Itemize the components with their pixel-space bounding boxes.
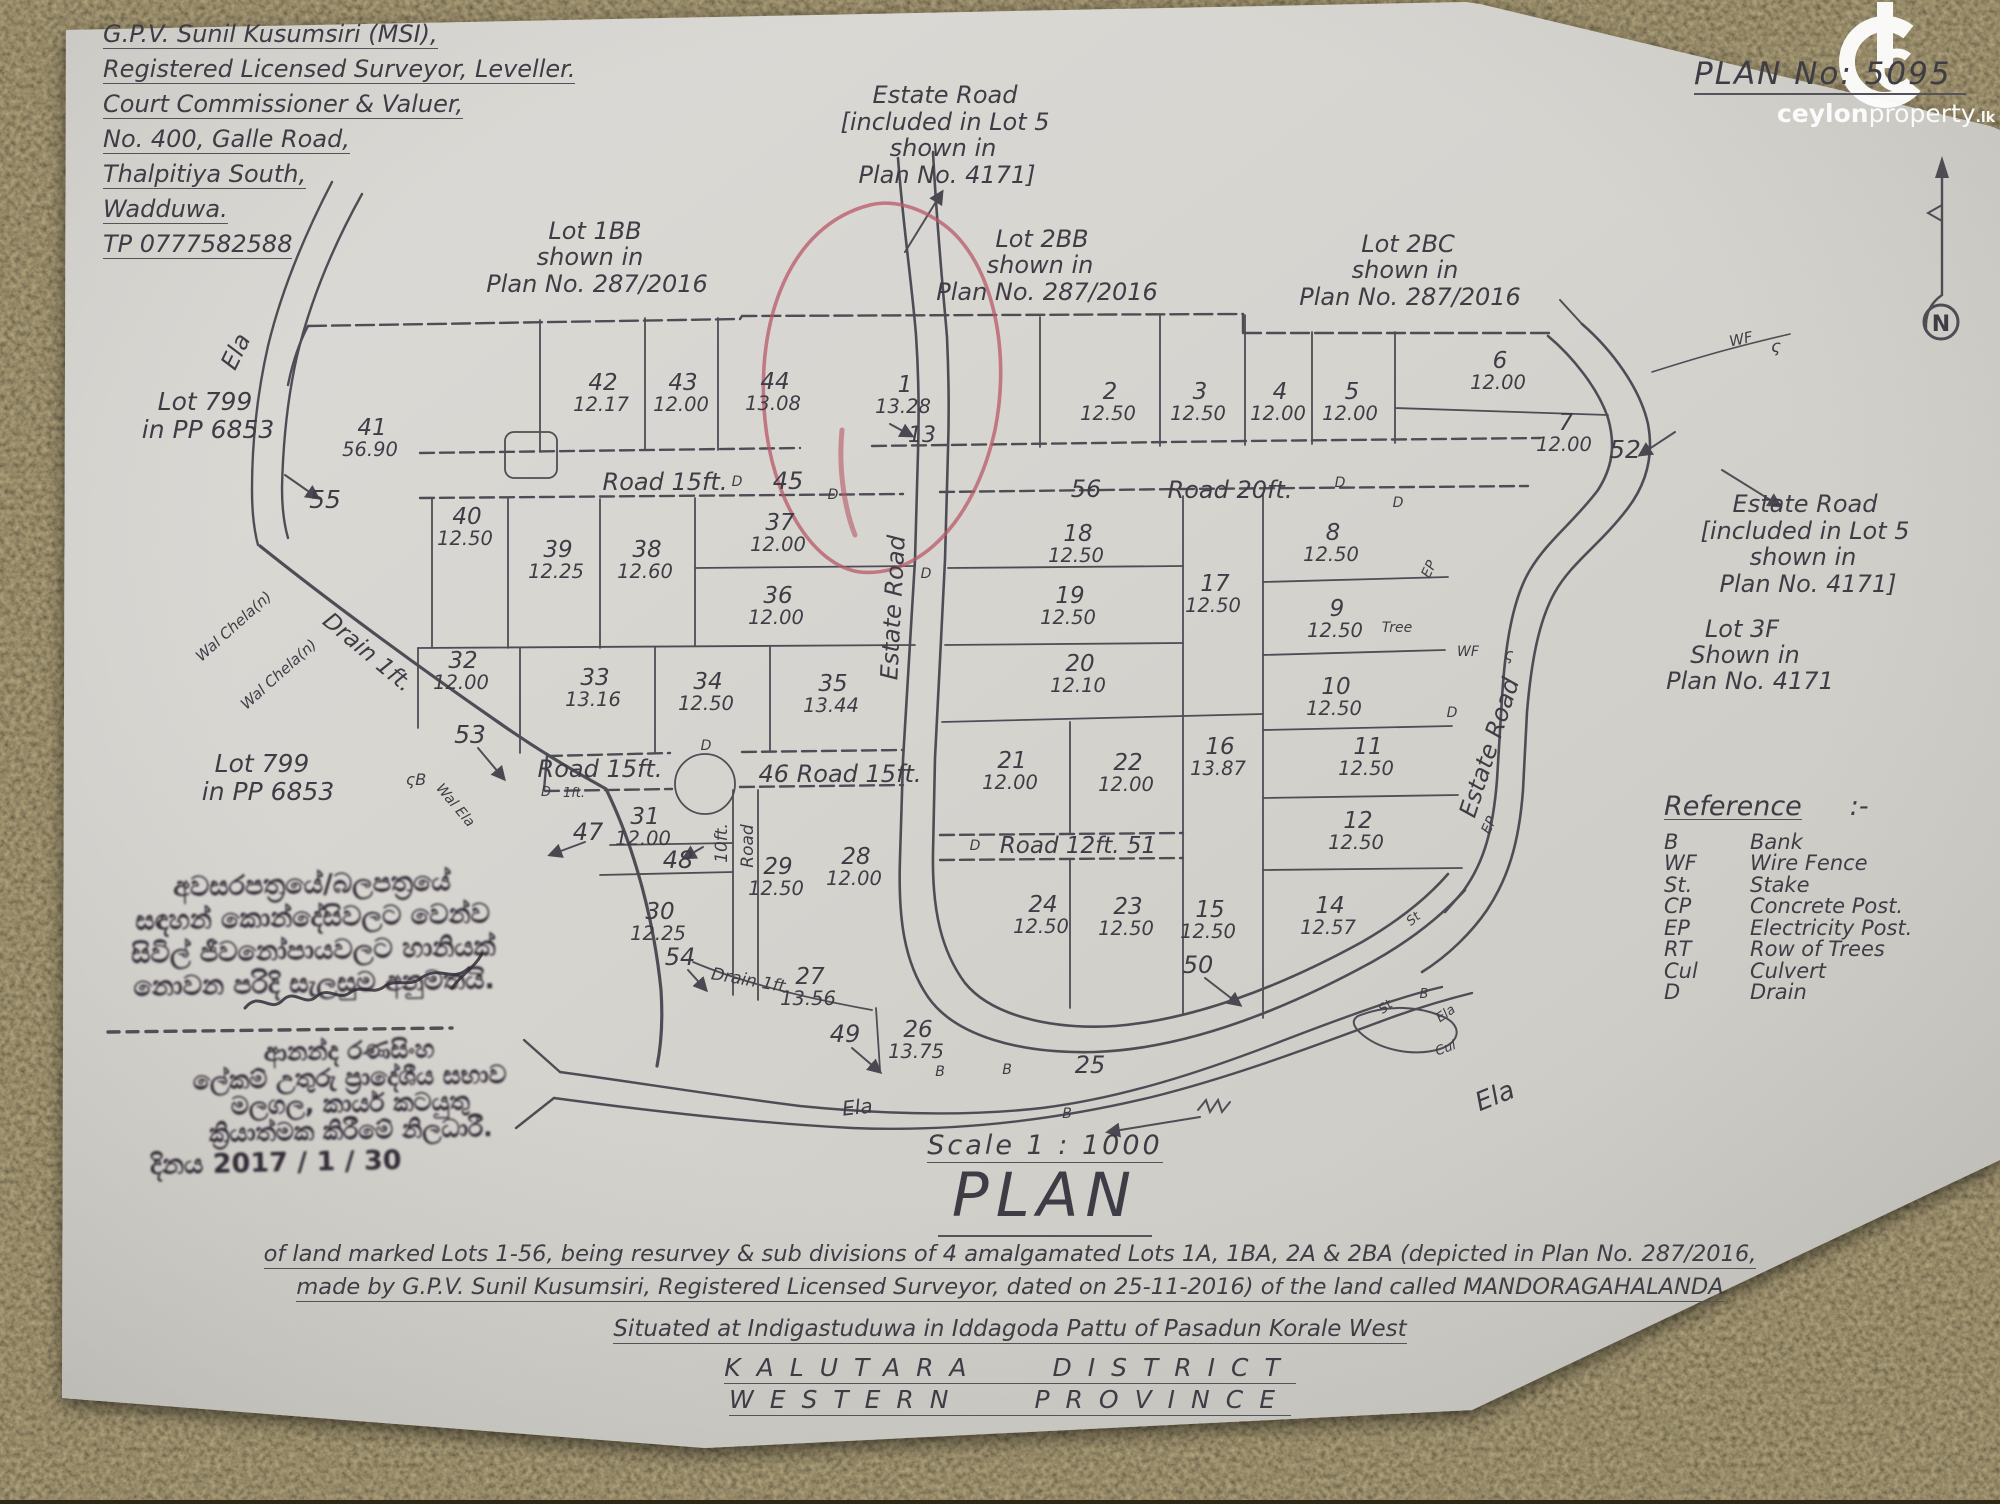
map-label: D <box>701 738 712 754</box>
map-label: Road 12ft. 51 <box>1000 833 1156 859</box>
map-label: shown in <box>1352 256 1459 284</box>
map-label: Road <box>738 824 758 868</box>
map-label: B <box>935 1064 945 1080</box>
legend-row-drain: DDrain <box>1664 982 1912 1004</box>
legend-row-wire-fence: WFWire Fence <box>1664 853 1912 875</box>
surveyor-address-3: Wadduwa. <box>103 197 575 224</box>
surveyor-title: Registered Licensed Surveyor, Leveller. <box>103 57 575 84</box>
map-label: 49 <box>830 1020 861 1048</box>
surveyor-address-2: Thalpitiya South, <box>103 162 575 189</box>
map-label: Shown in <box>1690 641 1799 669</box>
surveyor-phone: TP 0777582588 <box>103 232 575 259</box>
map-label: Estate Road <box>873 81 1019 109</box>
legend-row-bank: BBank <box>1664 832 1912 854</box>
map-label: 45 <box>773 467 804 495</box>
plan-number: PLAN No: 5095 <box>1694 56 1966 95</box>
map-label: shown in <box>1750 543 1857 571</box>
north-letter: N <box>1932 312 1950 337</box>
map-label: Road 20ft. <box>1168 476 1293 504</box>
legend-row-row-of-trees: RTRow of Trees <box>1664 939 1912 961</box>
reference-title: Reference:- <box>1664 796 1912 820</box>
map-label: in PP 6853 <box>202 777 334 806</box>
map-label: Tree <box>1382 620 1412 636</box>
map-label: Lot 799 <box>158 387 253 416</box>
map-label: Plan No. 287/2016 <box>486 270 708 298</box>
province-line: WESTERN PROVINCE <box>80 1385 1940 1416</box>
map-label: D <box>970 838 981 854</box>
map-label: [included in Lot 5 <box>1700 517 1909 545</box>
map-label: 53 <box>454 720 486 749</box>
map-label: in PP 6853 <box>142 415 274 444</box>
map-label: Plan No. 4171] <box>1719 570 1896 598</box>
surveyor-address-1: No. 400, Galle Road, <box>103 127 575 154</box>
map-label: D <box>1335 475 1346 491</box>
approval-stamp-text: අවසරපත්‍රයේ/බලපත්‍රයේ සඳහන් කොන්දේසිවලට … <box>87 863 540 1004</box>
map-label: D <box>541 785 551 800</box>
map-label: 13 <box>908 423 936 448</box>
description-line-2: made by G.P.V. Sunil Kusumsiri, Register… <box>80 1274 1940 1302</box>
description-line-3: Situated at Indigastuduwa in Iddagoda Pa… <box>80 1316 1940 1344</box>
map-label: Plan No. 4171] <box>858 161 1035 189</box>
map-label: 54 <box>665 943 696 971</box>
map-label: Lot 799 <box>215 749 310 778</box>
legend-row-culvert: CulCulvert <box>1664 961 1912 983</box>
map-label: 10ft. <box>712 823 732 863</box>
description-line-1: of land marked Lots 1-56, being resurvey… <box>80 1241 1940 1269</box>
map-label: [included in Lot 5 <box>840 108 1049 136</box>
map-label: D <box>1393 495 1404 511</box>
map-label: ς <box>1504 645 1513 664</box>
map-label: Road 15ft. <box>603 468 728 496</box>
scale-note: Scale 1 : 1000 <box>880 1130 1210 1163</box>
map-label: 52 <box>1609 435 1641 464</box>
map-label: 48 <box>663 846 694 874</box>
map-label: shown in <box>987 251 1094 279</box>
officer-stamp-text: ආනන්ද රණසිංහ ලේකම් උතුරු ප්‍රාදේශීය සභාව… <box>139 1034 561 1149</box>
legend-row-concrete-post: CPConcrete Post. <box>1664 896 1912 918</box>
map-label: B <box>1062 1106 1072 1122</box>
map-label: D <box>1447 705 1458 721</box>
map-label: 56 <box>1071 475 1102 503</box>
map-label: WF <box>1457 644 1480 660</box>
map-label: 50 <box>1183 951 1214 979</box>
logo-brand-text: ceylonproperty.lk <box>1777 99 1996 128</box>
map-label: D <box>921 566 932 582</box>
map-label: shown in <box>890 134 997 162</box>
map-label: 1ft. <box>563 786 585 801</box>
district-line: KALUTARA DISTRICT <box>80 1353 1940 1384</box>
map-label: B <box>1420 987 1429 1002</box>
map-label: Road 15ft. <box>538 755 663 783</box>
surveyor-title-2: Court Commissioner & Valuer, <box>103 92 575 119</box>
legend-row-electricity-post: EPElectricity Post. <box>1664 918 1912 940</box>
map-label: B <box>1002 1062 1012 1078</box>
map-label: Lot 3F <box>1705 615 1780 643</box>
map-label: 25 <box>1075 1051 1106 1079</box>
map-label: Lot 2BB <box>995 225 1088 253</box>
legend-row-stake: St.Stake <box>1664 875 1912 897</box>
photographed-survey-plan: 4156.904212.174312.004413.08113.28212.50… <box>0 0 2000 1500</box>
reference-legend: Reference:- BBank WFWire Fence St.Stake … <box>1664 796 1912 1004</box>
surveyor-info-block: G.P.V. Sunil Kusumsiri (MSI), Registered… <box>103 22 575 267</box>
map-label: D <box>732 474 743 490</box>
map-label: Plan No. 4171 <box>1666 667 1834 695</box>
map-label: ς <box>1771 337 1781 357</box>
map-label: Plan No. 287/2016 <box>1299 283 1521 311</box>
map-label: 46 Road 15ft. <box>758 760 921 788</box>
map-label: 55 <box>309 485 341 514</box>
map-label: D <box>828 487 839 503</box>
map-label: Ela <box>841 1094 874 1121</box>
page-title: PLAN <box>870 1160 1220 1237</box>
map-label: ςB <box>406 770 426 789</box>
map-label: 47 <box>573 818 604 846</box>
map-label: Estate Road <box>1733 490 1879 518</box>
surveyor-name: G.P.V. Sunil Kusumsiri (MSI), <box>103 22 575 49</box>
map-label: Lot 2BC <box>1361 230 1455 258</box>
map-label: Plan No. 287/2016 <box>936 278 1158 306</box>
